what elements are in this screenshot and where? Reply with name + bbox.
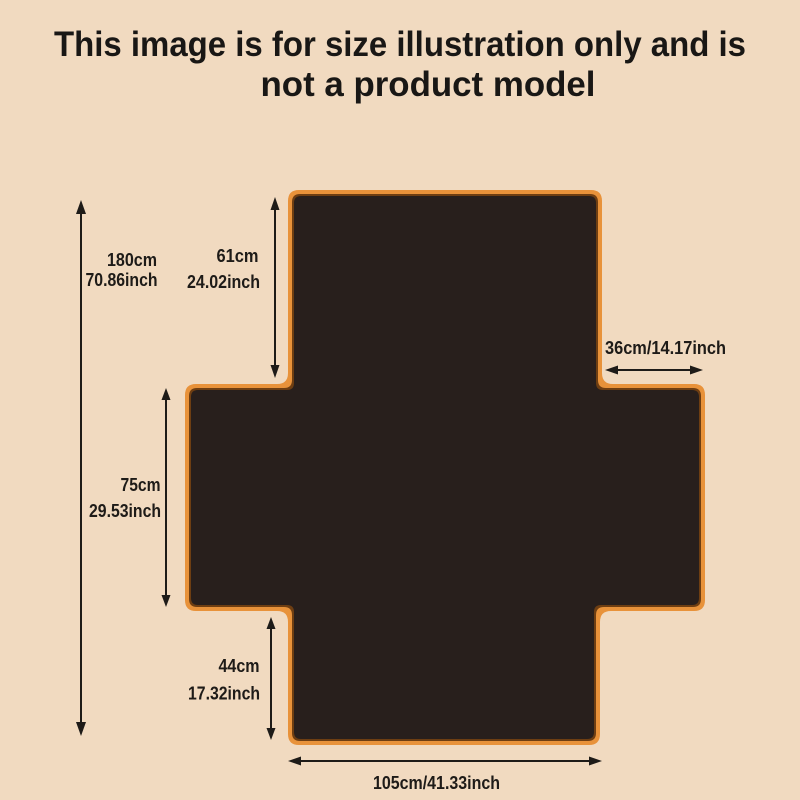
svg-text:70.86inch: 70.86inch (86, 270, 158, 290)
svg-text:17.32inch: 17.32inch (188, 684, 260, 704)
svg-text:24.02inch: 24.02inch (187, 272, 260, 292)
svg-text:36cm/14.17inch: 36cm/14.17inch (605, 338, 726, 358)
svg-text:not a product model: not a product model (261, 65, 596, 104)
svg-text:105cm/41.33inch: 105cm/41.33inch (373, 773, 500, 793)
svg-text:61cm: 61cm (217, 246, 259, 266)
svg-text:180cm: 180cm (107, 250, 157, 270)
svg-text:29.53inch: 29.53inch (89, 501, 161, 521)
svg-text:44cm: 44cm (219, 656, 260, 676)
svg-text:75cm: 75cm (121, 475, 161, 495)
svg-text:This image is for size illustr: This image is for size illustration only… (54, 25, 746, 64)
